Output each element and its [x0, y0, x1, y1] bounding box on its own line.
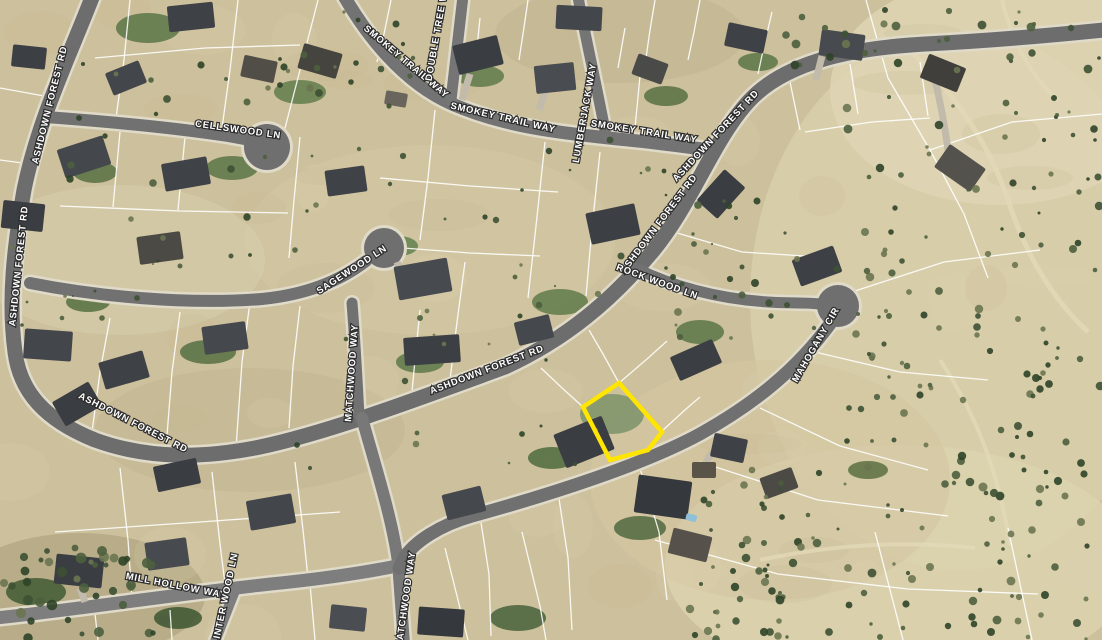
- shrub: [99, 315, 105, 321]
- shrub: [1055, 356, 1059, 360]
- shrub: [887, 95, 891, 99]
- shrub: [925, 145, 929, 149]
- shrub: [110, 554, 119, 563]
- shrub: [645, 166, 651, 172]
- shrub: [400, 153, 406, 159]
- shrub: [726, 203, 732, 209]
- shrub: [94, 290, 97, 293]
- shrub: [908, 575, 916, 583]
- shrub: [545, 459, 548, 462]
- shrub: [1080, 470, 1087, 477]
- shrub: [315, 89, 323, 97]
- shrub: [935, 121, 944, 130]
- terrain-noise: [388, 199, 490, 231]
- shrub: [72, 295, 74, 297]
- shrub: [72, 545, 79, 552]
- shrub: [1032, 22, 1036, 26]
- shrub: [928, 383, 933, 388]
- shrub: [160, 235, 166, 241]
- shrub: [1051, 563, 1059, 571]
- shrub: [760, 628, 768, 636]
- shrub: [870, 439, 874, 443]
- shrub: [966, 188, 969, 191]
- shrub: [229, 254, 234, 259]
- shrub: [692, 632, 698, 638]
- shrub: [1044, 470, 1049, 475]
- shrub: [945, 623, 951, 629]
- shrub: [342, 10, 345, 13]
- shrub: [856, 312, 860, 316]
- shrub: [768, 587, 776, 595]
- shrub: [751, 279, 759, 287]
- shrub: [665, 194, 668, 197]
- shrub: [1032, 374, 1040, 382]
- shrub: [1095, 174, 1102, 181]
- shrub: [791, 61, 800, 70]
- shrub: [263, 155, 267, 159]
- shrub: [739, 542, 746, 549]
- shrub: [1056, 346, 1059, 349]
- shrub: [442, 342, 447, 347]
- shrub: [344, 337, 349, 342]
- shrub: [1040, 326, 1045, 331]
- shrub: [937, 39, 941, 43]
- shrub: [39, 558, 44, 563]
- shrub: [844, 438, 850, 444]
- lawn-patch: [644, 86, 688, 106]
- shrub: [308, 466, 312, 470]
- shrub: [1031, 394, 1036, 399]
- shrub: [778, 591, 782, 595]
- shrub: [975, 305, 983, 313]
- shrub: [1068, 25, 1074, 31]
- shrub: [386, 103, 391, 108]
- shrub: [883, 248, 888, 253]
- shrub: [844, 125, 853, 134]
- shrub: [882, 7, 888, 13]
- shrub: [737, 596, 743, 602]
- shrub: [1001, 547, 1005, 551]
- shrub: [35, 597, 45, 607]
- shrub: [76, 553, 87, 564]
- shrub: [569, 169, 572, 172]
- shrub: [890, 394, 896, 400]
- shrub: [1044, 341, 1049, 346]
- shrub: [513, 275, 518, 280]
- shrub: [1062, 493, 1069, 500]
- shrub: [881, 341, 886, 346]
- shrub: [1017, 10, 1020, 13]
- shrub: [540, 425, 543, 428]
- shrub: [927, 152, 932, 157]
- shrub: [1086, 177, 1090, 181]
- shrub: [519, 431, 525, 437]
- shrub: [595, 291, 601, 297]
- shrub: [825, 628, 833, 636]
- shrub: [861, 590, 867, 596]
- shrub: [674, 308, 682, 316]
- shrub: [906, 289, 912, 295]
- shrub: [892, 438, 897, 443]
- shrub: [670, 274, 676, 280]
- shrub: [900, 409, 908, 417]
- shrub: [546, 148, 552, 154]
- shrub: [20, 323, 24, 327]
- shrub: [134, 295, 140, 301]
- house: [692, 462, 716, 478]
- shrub: [924, 235, 927, 238]
- shrub: [979, 483, 988, 492]
- shrub: [1021, 455, 1026, 460]
- shrub: [519, 263, 522, 266]
- shrub: [66, 175, 73, 182]
- shrub: [142, 558, 152, 568]
- shrub: [926, 563, 934, 571]
- shrub: [918, 384, 923, 389]
- shrub: [767, 564, 770, 567]
- shrub: [730, 568, 736, 574]
- shrub: [920, 526, 925, 531]
- shrub: [749, 467, 756, 474]
- shrub: [822, 25, 828, 31]
- shrub: [80, 632, 85, 637]
- house: [23, 328, 73, 361]
- shrub: [1027, 554, 1030, 557]
- shrub: [1045, 362, 1050, 367]
- shrub: [1067, 110, 1070, 113]
- house: [11, 44, 47, 69]
- shrub: [1015, 618, 1022, 625]
- shrub: [969, 597, 977, 605]
- shrub: [946, 8, 952, 14]
- shrub: [1084, 543, 1089, 548]
- shrub: [846, 602, 853, 609]
- shrub: [886, 503, 890, 507]
- shrub: [1084, 65, 1093, 74]
- shrub: [951, 104, 955, 108]
- shrub: [388, 182, 392, 186]
- shrub: [861, 228, 869, 236]
- shrub: [63, 294, 67, 298]
- shrub: [729, 336, 733, 340]
- shrub: [754, 198, 761, 205]
- shrub: [640, 172, 643, 175]
- shrub: [738, 291, 745, 298]
- shrub: [864, 268, 870, 274]
- shrub: [984, 541, 990, 547]
- shrub: [989, 516, 995, 522]
- shrub: [1016, 594, 1022, 600]
- shrub: [60, 316, 65, 321]
- shrub: [792, 40, 801, 49]
- shrub: [794, 256, 800, 262]
- shrub: [783, 231, 786, 234]
- shrub: [1014, 21, 1018, 25]
- shrub: [869, 622, 872, 625]
- shrub: [734, 216, 738, 220]
- shrub: [1002, 134, 1008, 140]
- shrub: [1015, 435, 1019, 439]
- shrub: [23, 578, 31, 586]
- shrub: [1000, 227, 1003, 230]
- shrub: [987, 628, 995, 636]
- shrub: [677, 334, 683, 340]
- shrub: [45, 558, 53, 566]
- shrub: [990, 489, 998, 497]
- shrub: [713, 295, 717, 299]
- shrub: [711, 243, 713, 245]
- shrub: [711, 565, 715, 569]
- shrub: [826, 53, 834, 61]
- shrub: [65, 617, 71, 623]
- shrub: [1019, 232, 1025, 238]
- shrub: [1040, 370, 1046, 376]
- shrub: [764, 495, 769, 500]
- shrub: [782, 31, 790, 39]
- shrub: [402, 378, 408, 384]
- shrub: [1097, 56, 1101, 60]
- shrub: [1054, 477, 1062, 485]
- shrub: [740, 481, 748, 489]
- map-image[interactable]: ASHDOWN FOREST RDASHDOWN FOREST RDCELLSW…: [0, 0, 1102, 640]
- shrub: [1009, 452, 1015, 458]
- shrub: [844, 483, 847, 486]
- shrub: [971, 621, 978, 628]
- shrub: [27, 617, 34, 624]
- shrub: [128, 216, 134, 222]
- shrub: [1038, 242, 1043, 247]
- shrub: [877, 634, 883, 640]
- shrub: [102, 133, 107, 138]
- shrub: [987, 348, 993, 354]
- shrub: [844, 564, 852, 572]
- shrub: [1069, 245, 1077, 253]
- shrub: [433, 334, 436, 337]
- shrub: [311, 155, 314, 158]
- shrub: [314, 65, 320, 71]
- shrub: [843, 104, 852, 113]
- shrub: [356, 18, 361, 23]
- shrub: [280, 63, 287, 70]
- shrub: [67, 161, 75, 169]
- shrub: [664, 266, 668, 270]
- shrub: [975, 313, 981, 319]
- shrub: [305, 209, 308, 212]
- shrub: [1051, 95, 1057, 101]
- shrub: [520, 188, 524, 192]
- shrub: [873, 49, 876, 52]
- shrub: [1036, 485, 1044, 493]
- shrub: [607, 137, 614, 144]
- shrub: [797, 543, 805, 551]
- shrub: [958, 452, 966, 460]
- shrub: [482, 214, 487, 219]
- shrub: [554, 285, 556, 287]
- shrub: [348, 79, 354, 85]
- shrub: [57, 567, 67, 577]
- shrub: [1027, 431, 1034, 438]
- shrub: [834, 266, 841, 273]
- shrub: [813, 539, 822, 548]
- shrub: [924, 443, 929, 448]
- shrub: [109, 587, 117, 595]
- shrub: [785, 635, 788, 638]
- shrub: [277, 82, 283, 88]
- house: [324, 165, 367, 196]
- shrub: [974, 332, 979, 337]
- shrub: [888, 269, 895, 276]
- shrub: [157, 260, 160, 263]
- shrub: [119, 601, 127, 609]
- shrub: [858, 406, 864, 412]
- shrub: [301, 52, 308, 59]
- shrub: [1007, 577, 1016, 586]
- shrub: [1036, 385, 1043, 392]
- shrub: [761, 540, 767, 546]
- shrub: [806, 513, 811, 518]
- shrub: [972, 185, 980, 193]
- shrub: [1038, 612, 1044, 618]
- shrub: [894, 59, 902, 67]
- shrub: [1077, 518, 1085, 526]
- shrub: [884, 309, 888, 313]
- shrub: [768, 313, 773, 318]
- shrub: [248, 253, 252, 257]
- shrub: [488, 343, 491, 346]
- shrub: [898, 172, 904, 178]
- shrub: [841, 30, 848, 37]
- shrub: [755, 567, 762, 574]
- shrub: [16, 608, 26, 618]
- shrub: [1041, 591, 1049, 599]
- shrub: [294, 442, 300, 448]
- aerial-parcel-map[interactable]: ASHDOWN FOREST RDASHDOWN FOREST RDCELLSW…: [0, 0, 1102, 640]
- shrub: [778, 480, 783, 485]
- shrub: [1006, 53, 1013, 60]
- shrub: [508, 462, 511, 465]
- shrub: [742, 554, 751, 563]
- shrub: [306, 84, 313, 91]
- shrub: [413, 441, 420, 448]
- shrub: [1073, 619, 1081, 627]
- shrub: [114, 72, 119, 77]
- shrub: [709, 528, 713, 532]
- shrub: [837, 528, 840, 531]
- shrub: [73, 575, 80, 582]
- shrub: [714, 609, 719, 614]
- shrub: [935, 287, 943, 295]
- shrub: [244, 99, 251, 106]
- shrub: [722, 199, 725, 202]
- shrub: [493, 217, 499, 223]
- shrub: [1048, 171, 1053, 176]
- shrub: [1090, 125, 1098, 133]
- shrub: [224, 77, 228, 81]
- shrub: [1075, 240, 1082, 247]
- terrain-noise: [152, 406, 208, 432]
- shrub: [731, 583, 739, 591]
- shrub: [1084, 597, 1089, 602]
- shrub: [1003, 100, 1010, 107]
- shrub: [1014, 111, 1018, 115]
- shrub: [47, 600, 58, 611]
- shrub: [867, 352, 871, 356]
- shrub: [966, 478, 975, 487]
- lawn-patch: [676, 320, 724, 344]
- shrub: [243, 213, 250, 220]
- shrub: [159, 615, 169, 625]
- shrub: [9, 245, 14, 250]
- terrain-noise: [799, 176, 845, 216]
- shrub: [799, 14, 806, 21]
- shrub: [8, 582, 16, 590]
- lawn-patch: [490, 605, 546, 631]
- shrub: [150, 630, 155, 635]
- shrub: [706, 501, 713, 508]
- shrub: [1008, 531, 1015, 538]
- shrub: [765, 574, 769, 578]
- shrub: [1022, 468, 1027, 473]
- shrub: [536, 302, 543, 309]
- shrub: [874, 394, 880, 400]
- shrub: [887, 375, 890, 378]
- lawn-patch: [738, 53, 778, 71]
- shrub: [900, 361, 904, 365]
- shrub: [154, 112, 158, 116]
- shrub: [278, 57, 282, 61]
- shrub: [393, 21, 400, 28]
- shrub: [691, 232, 694, 235]
- shrub: [916, 391, 923, 398]
- shrub: [954, 67, 961, 74]
- shrub: [148, 77, 154, 83]
- shrub: [779, 514, 785, 520]
- shrub: [867, 175, 872, 180]
- shrub: [378, 66, 385, 73]
- house: [417, 606, 465, 637]
- shrub: [1001, 540, 1005, 544]
- shrub: [417, 315, 423, 321]
- shrub: [88, 559, 93, 564]
- shrub: [1077, 459, 1085, 467]
- shrub: [313, 202, 319, 208]
- house: [555, 5, 602, 31]
- shrub: [1023, 370, 1030, 377]
- shrub: [415, 431, 420, 436]
- shrub: [904, 363, 911, 370]
- shrub: [716, 624, 721, 629]
- shrub: [1042, 138, 1046, 142]
- shrub: [444, 218, 447, 221]
- shrub: [941, 480, 949, 488]
- shrub: [1014, 422, 1022, 430]
- shrub: [1028, 526, 1036, 534]
- shrub: [776, 618, 782, 624]
- shrub: [178, 264, 183, 269]
- shrub: [23, 595, 33, 605]
- shrub: [704, 627, 712, 635]
- shrub: [544, 358, 547, 361]
- shrub: [97, 546, 107, 556]
- shrub: [978, 588, 983, 593]
- shrub: [686, 605, 694, 613]
- shrub: [978, 21, 987, 30]
- shrub: [104, 563, 109, 568]
- shrub: [699, 582, 703, 586]
- shrub: [292, 247, 298, 253]
- shrub: [902, 600, 909, 607]
- shrub: [79, 583, 89, 593]
